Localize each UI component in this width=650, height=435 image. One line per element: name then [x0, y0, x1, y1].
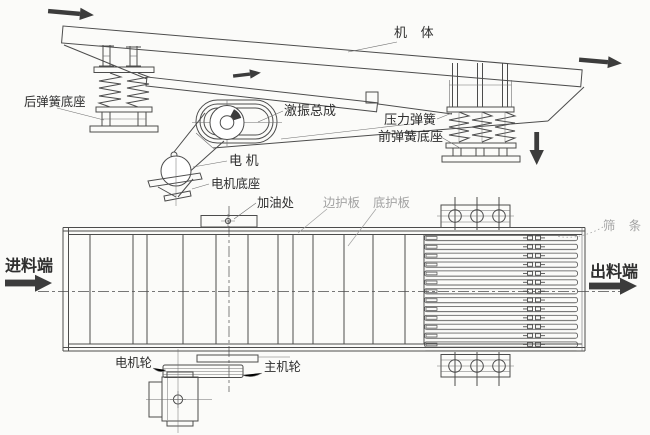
label-front-spring-base: 前弹簧底座 — [378, 129, 443, 144]
label-main-wheel: 主机轮 — [264, 360, 301, 374]
label-discharge-end: 出料端 — [590, 262, 638, 281]
label-motor: 电 机 — [229, 153, 259, 168]
machine-body-beam — [62, 26, 584, 148]
label-motor-base: 电机底座 — [211, 176, 260, 191]
screen-bars — [424, 235, 578, 351]
exciter-assembly-drawing — [192, 100, 282, 146]
feed-arrow — [5, 275, 52, 292]
label-pressure-spring: 压力弹簧 — [384, 112, 436, 127]
label-rear-spring-base: 后弹簧底座 — [24, 94, 86, 109]
flow-arrow-middle — [233, 68, 262, 81]
rib-lines — [90, 235, 424, 345]
leader-pressure-spring — [437, 113, 452, 119]
label-motor-wheel: 电机轮 — [115, 356, 152, 370]
flow-arrow-top-right — [579, 54, 623, 70]
label-screen-bars: 筛 条 — [603, 218, 646, 233]
leader-main-wheel — [242, 373, 262, 377]
label-feed-end: 进料端 — [5, 256, 53, 275]
plan-view: 加油处 边护板 底护板 筛 条 进料端 出料端 电机轮 主机轮 — [5, 195, 646, 433]
flow-arrow-down — [530, 132, 544, 165]
flow-arrow-top-left — [48, 5, 95, 21]
label-bottom-guard-plate: 底护板 — [373, 195, 410, 210]
bolt-plate-bottom — [437, 352, 514, 386]
label-oil-fill: 加油处 — [257, 196, 294, 210]
leader-side-guard — [298, 209, 327, 233]
vibrating-feeder-diagram: 机 体 后弹簧底座 激振总成 压力弹簧 前弹簧底座 电 机 电机底座 — [0, 0, 650, 435]
side-view: 机 体 后弹簧底座 激振总成 压力弹簧 前弹簧底座 电 机 电机底座 — [24, 5, 622, 206]
leader-rear-spring-base — [57, 108, 104, 120]
bolt-plate-top — [437, 197, 514, 230]
label-machine-body: 机 体 — [394, 25, 439, 40]
vibrating-feeder-diagram-page: 机 体 后弹簧底座 激振总成 压力弹簧 前弹簧底座 电 机 电机底座 — [0, 0, 650, 435]
front-spring-assembly — [442, 63, 520, 162]
label-side-guard-plate: 边护板 — [323, 196, 360, 210]
leader-oil-fill — [234, 203, 256, 219]
label-exciter-assembly: 激振总成 — [284, 103, 336, 118]
leader-motor-base — [192, 184, 209, 189]
leader-machine-body — [348, 42, 397, 52]
